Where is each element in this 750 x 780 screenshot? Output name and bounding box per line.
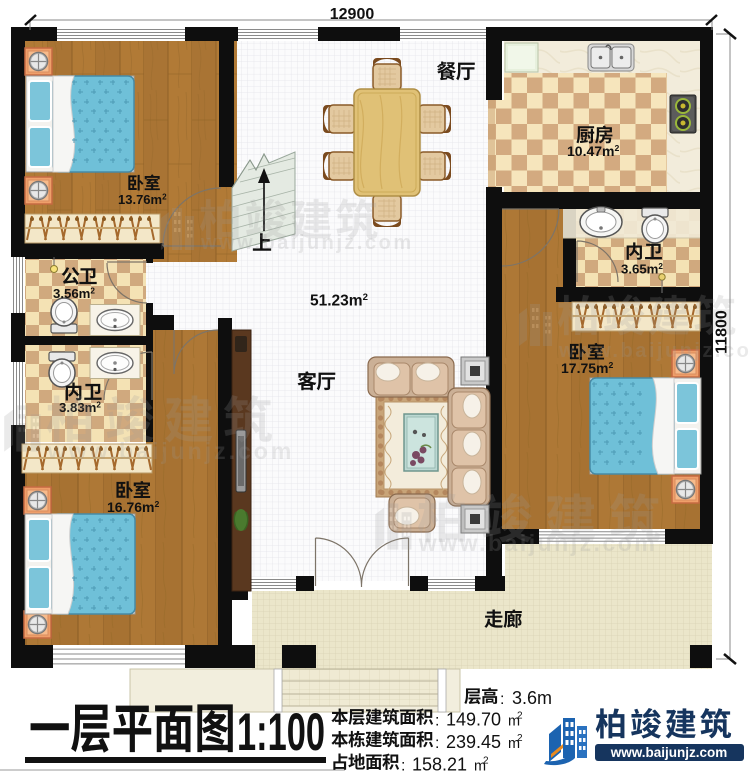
svg-text::: :: [435, 713, 439, 730]
svg-text:12900: 12900: [330, 6, 375, 23]
svg-text:2: 2: [517, 733, 523, 744]
svg-text:2: 2: [483, 756, 489, 767]
svg-text:13.76m2: 13.76m2: [118, 192, 167, 207]
svg-text::: :: [435, 735, 439, 752]
svg-text::: :: [500, 691, 504, 708]
svg-text:2: 2: [517, 711, 523, 722]
svg-text:17.75m2: 17.75m2: [561, 360, 613, 376]
svg-text:10.47m2: 10.47m2: [567, 143, 619, 159]
svg-text:3.56m2: 3.56m2: [53, 286, 95, 301]
svg-text:239.45: 239.45: [446, 732, 501, 752]
svg-text:3.65m2: 3.65m2: [621, 262, 663, 277]
svg-text:51.23m2: 51.23m2: [310, 292, 368, 309]
svg-text:3.6m: 3.6m: [512, 688, 552, 708]
svg-text::: :: [401, 758, 405, 775]
svg-text:158.21: 158.21: [412, 755, 467, 775]
svg-text:www.baijunjz.com: www.baijunjz.com: [610, 745, 728, 760]
svg-text:www.baijunjz.com: www.baijunjz.com: [47, 438, 294, 464]
svg-text:16.76m2: 16.76m2: [107, 499, 159, 515]
svg-text:149.70: 149.70: [446, 710, 501, 730]
svg-text:11800: 11800: [714, 310, 731, 354]
svg-text:1:100: 1:100: [237, 703, 325, 762]
svg-text:www.baijunjz.com: www.baijunjz.com: [418, 530, 658, 556]
svg-text:www.baijunjz.com: www.baijunjz.com: [200, 232, 414, 254]
